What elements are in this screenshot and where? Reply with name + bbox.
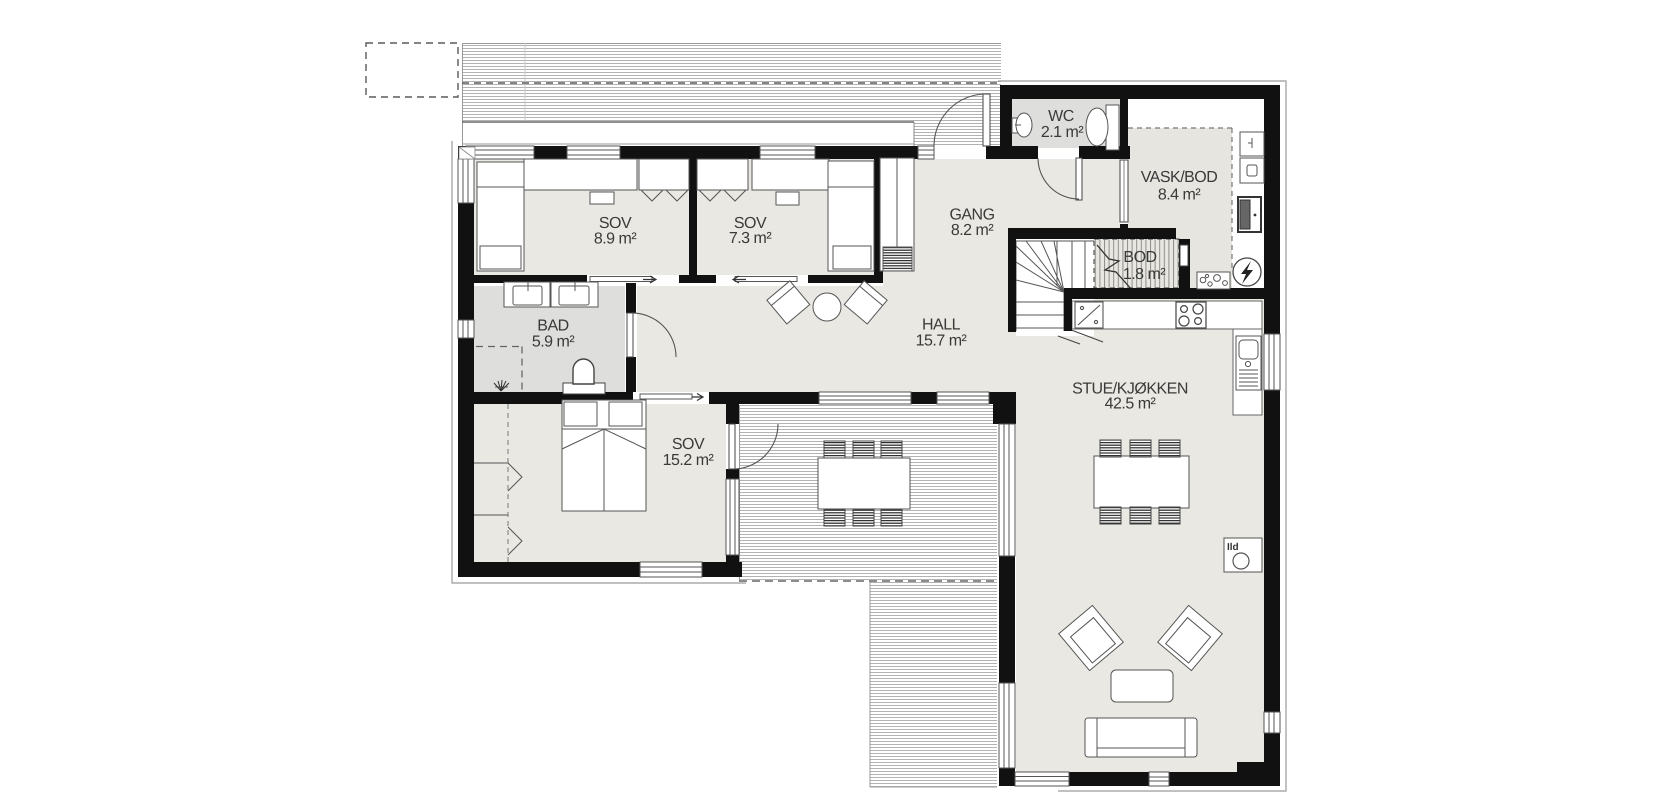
svg-text:8.2 m²: 8.2 m²	[951, 222, 995, 239]
svg-text:HALL: HALL	[922, 317, 961, 334]
svg-text:7.3 m²: 7.3 m²	[729, 230, 773, 247]
svg-text:5.9 m²: 5.9 m²	[532, 334, 576, 351]
svg-text:Ild: Ild	[1227, 542, 1239, 553]
svg-text:8.4 m²: 8.4 m²	[1158, 187, 1202, 204]
svg-text:VASK/BOD: VASK/BOD	[1141, 169, 1218, 186]
svg-text:BAD: BAD	[537, 318, 568, 335]
svg-text:SOV: SOV	[599, 215, 632, 232]
svg-text:2.1 m²: 2.1 m²	[1041, 124, 1085, 141]
svg-text:42.5 m²: 42.5 m²	[1105, 396, 1157, 413]
svg-text:15.2 m²: 15.2 m²	[663, 452, 715, 469]
svg-text:SOV: SOV	[672, 436, 705, 453]
svg-text:8.9 m²: 8.9 m²	[594, 231, 638, 248]
svg-text:1.8 m²: 1.8 m²	[1123, 266, 1167, 283]
svg-text:15.7 m²: 15.7 m²	[916, 333, 968, 350]
svg-text:BOD: BOD	[1123, 249, 1156, 266]
svg-text:WC: WC	[1048, 108, 1074, 125]
svg-text:GANG: GANG	[949, 207, 994, 224]
